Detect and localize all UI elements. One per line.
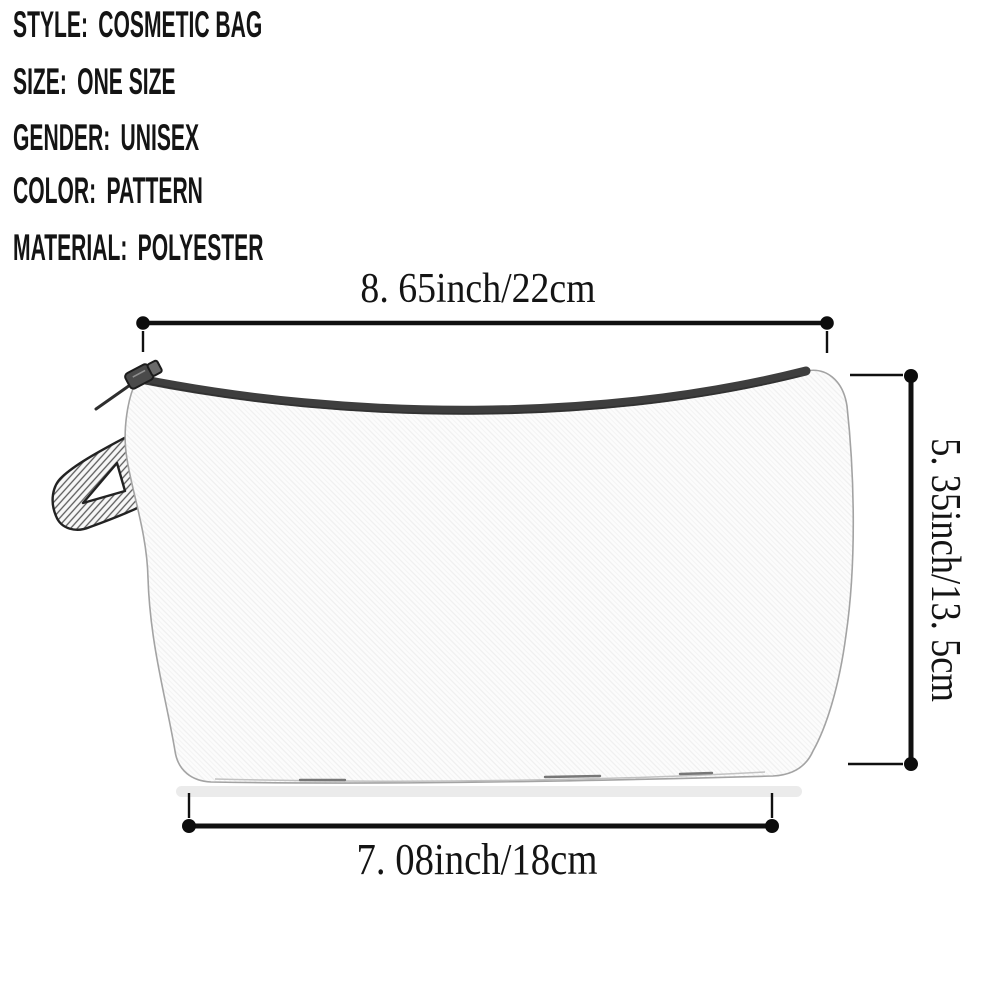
top-width-dimension-label: 8. 65inch/22cm xyxy=(360,266,595,312)
bottom-width-dimension-label: 7. 08inch/18cm xyxy=(357,836,598,884)
top-width-dimension xyxy=(136,316,834,353)
side-height-dimension-label: 5. 35inch/13. 5cm xyxy=(922,438,968,702)
bag-shadow xyxy=(176,786,802,797)
zipper-pull-cord xyxy=(96,383,133,409)
bottom-width-dimension xyxy=(182,793,779,833)
side-height-dimension xyxy=(848,369,918,771)
bag-body xyxy=(125,370,853,783)
product-spec-image: STYLE: COSMETIC BAG SIZE: ONE SIZE GENDE… xyxy=(0,0,1000,1000)
